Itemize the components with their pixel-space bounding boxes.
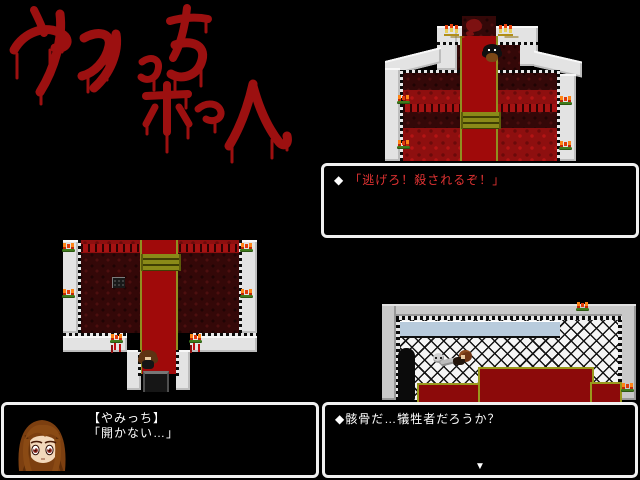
dialog-text: 「開かない…」 [88,426,179,441]
dialog-box-yamicchi[interactable]: 【やみっち】 「開かない…」 [1,402,319,478]
wall-sconce-icon [576,302,590,316]
wall-trim [437,42,462,45]
wall-trim [78,240,81,333]
dripping-sconce-icon [110,334,124,348]
window-band [400,321,560,338]
skull-eye-sockets [435,357,437,359]
map-view-chapel-lower: 【やみっち】 「開かない…」 [0,240,320,480]
wall [382,304,396,400]
altar-platform [417,383,482,402]
wall-trim [176,350,179,376]
sprite-face [145,357,151,360]
diamond-bullet-icon: ◆ [334,173,344,187]
dialog-text: 「逃げろ！殺されるぞ！」 [349,173,505,187]
title-blood-text [0,0,320,240]
wall-trim [494,70,557,73]
blood-drips [114,342,116,350]
wall-sconce-icon [397,140,411,154]
continue-arrow-icon[interactable]: ▼ [475,462,485,472]
yamicchi-face-portrait [16,417,68,471]
dialog-box-skeleton[interactable]: ◆骸骨だ…犠牲者だろうか？ ▼ [322,402,638,478]
candelabra-icon [444,25,460,39]
wall-sconce-icon [62,289,76,303]
locked-door[interactable] [143,371,169,392]
player-sprite [453,349,475,367]
altar-platform [478,367,594,402]
altar-steps [461,112,501,129]
wall-trim [403,70,460,73]
wall-sconce-icon [397,95,411,109]
sprite-face [461,355,465,359]
altar-steps [141,254,181,271]
wall-sconce-icon [240,243,254,257]
wall-sconce-icon [559,96,573,110]
dripping-sconce-icon [189,334,203,348]
map-view-chapel-upper: ◆「逃げろ！殺されるぞ！」 [320,0,640,240]
wall-trim [396,316,622,320]
game-screen[interactable]: やみっちホーム [0,0,640,480]
diamond-bullet-icon: ◆ [335,412,345,426]
sprite-eyes [488,49,490,51]
wall-sconce-icon [62,243,76,257]
wall-sconce-icon [621,383,635,397]
dialog-speaker: 【やみっち】 [88,411,179,426]
candelabra-icon [498,25,514,39]
shadow-figure-sprite [398,348,415,400]
dialog-text: 骸骨だ…犠牲者だろうか？ [345,412,500,426]
title-panel: やみっちホーム [0,0,320,240]
map-view-cell-room: ◆骸骨だ…犠牲者だろうか？ ▼ [320,240,640,480]
blood-splatter [466,19,482,32]
blood-drips [193,342,195,350]
dialog-box-warning[interactable]: ◆「逃げろ！殺されるぞ！」 [321,163,639,238]
altar-platform [590,382,622,402]
wall-sconce-icon [559,141,573,155]
player-sprite [483,44,501,63]
player-sprite [139,350,157,369]
wall-sconce-icon [240,289,254,303]
floor-grate [112,277,125,288]
wall [382,304,636,316]
